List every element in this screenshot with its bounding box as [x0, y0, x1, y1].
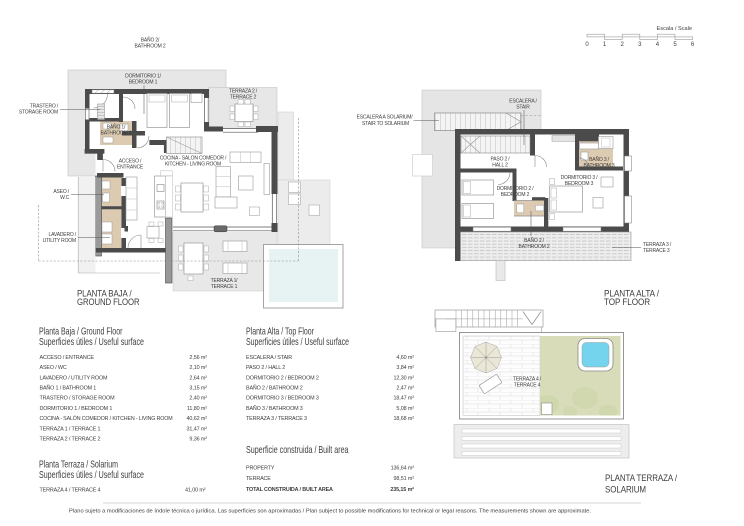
svg-text:3,84 m²: 3,84 m²: [396, 365, 414, 371]
svg-text:BAÑO 2 /: BAÑO 2 /: [524, 237, 544, 244]
svg-text:136,64 m²: 136,64 m²: [391, 466, 415, 472]
svg-text:TERRAZA 1 / TERRACE 1: TERRAZA 1 / TERRACE 1: [40, 426, 101, 432]
svg-text:Superficie construida / Built: Superficie construida / Built area: [246, 445, 349, 456]
svg-text:11,80 m²: 11,80 m²: [187, 406, 207, 412]
svg-text:4: 4: [656, 42, 660, 48]
svg-text:W.C: W.C: [60, 195, 69, 201]
svg-text:2,47 m²: 2,47 m²: [396, 386, 414, 392]
svg-text:BAÑO 2 / BATHROOM 2: BAÑO 2 / BATHROOM 2: [246, 385, 303, 392]
svg-text:BATHROOM 1: BATHROOM 1: [101, 131, 132, 137]
svg-text:Plano sujeto a modificaciones: Plano sujeto a modificaciones de índole …: [69, 509, 591, 515]
svg-text:3,15 m²: 3,15 m²: [189, 386, 207, 392]
svg-text:UTILITY ROOM: UTILITY ROOM: [43, 238, 76, 244]
svg-text:6: 6: [691, 42, 695, 48]
svg-text:GROUND FLOOR: GROUND FLOOR: [77, 297, 140, 307]
svg-text:Superficies útiles / Useful su: Superficies útiles / Useful surface: [39, 470, 144, 481]
svg-text:TOP FLOOR: TOP FLOOR: [604, 297, 650, 307]
svg-text:Planta Terraza / Solarium: Planta Terraza / Solarium: [39, 460, 118, 471]
svg-text:Planta Baja / Ground Floor: Planta Baja / Ground Floor: [39, 327, 123, 338]
svg-text:41,00 m²: 41,00 m²: [185, 488, 206, 494]
svg-text:12,30 m²: 12,30 m²: [394, 375, 415, 381]
svg-text:Planta Alta / Top Floor: Planta Alta / Top Floor: [246, 327, 314, 338]
svg-text:DORMITORIO 1 / BEDROOM 1: DORMITORIO 1 / BEDROOM 1: [40, 406, 113, 412]
svg-text:BEDROOM 1: BEDROOM 1: [129, 80, 158, 86]
svg-text:ACCESO / ENTRANCE: ACCESO / ENTRANCE: [40, 355, 95, 361]
svg-text:BAÑO 2/: BAÑO 2/: [141, 37, 160, 44]
svg-text:DORMITORIO 3 / BEDROOM 3: DORMITORIO 3 / BEDROOM 3: [246, 396, 319, 402]
svg-text:ESCALERA / STAIR: ESCALERA / STAIR: [246, 355, 292, 361]
svg-text:TOTAL CONSTRUIDA / BUILT AREA: TOTAL CONSTRUIDA / BUILT AREA: [246, 487, 333, 493]
svg-text:1: 1: [603, 42, 607, 48]
svg-text:2,40 m²: 2,40 m²: [189, 396, 207, 402]
svg-text:BEDROOM 3: BEDROOM 3: [565, 181, 594, 187]
svg-text:TERRAZA 3 / TERRACE 3: TERRAZA 3 / TERRACE 3: [246, 416, 307, 422]
svg-text:2,56 m²: 2,56 m²: [189, 355, 207, 361]
svg-text:DORMITORIO 2 / BEDROOM 2: DORMITORIO 2 / BEDROOM 2: [246, 375, 319, 381]
svg-text:TERRAZA 2 / TERRACE 2: TERRAZA 2 / TERRACE 2: [40, 437, 101, 443]
svg-text:5,08 m²: 5,08 m²: [396, 406, 414, 412]
svg-text:3: 3: [638, 42, 642, 48]
svg-text:BATHROOM 2: BATHROOM 2: [519, 244, 550, 250]
svg-text:PROPERTY: PROPERTY: [246, 466, 275, 472]
svg-text:KITCHEN - LIVING ROOM: KITCHEN - LIVING ROOM: [165, 162, 221, 168]
svg-text:2,10 m²: 2,10 m²: [189, 365, 207, 371]
svg-text:HALL 2: HALL 2: [492, 163, 508, 169]
svg-text:5: 5: [673, 42, 677, 48]
svg-text:2: 2: [621, 42, 625, 48]
svg-text:LAVADERO / UTILITY ROOM: LAVADERO / UTILITY ROOM: [40, 375, 108, 381]
svg-text:PLANTA TERRAZA /: PLANTA TERRAZA /: [605, 473, 677, 483]
svg-text:BATHROOM 2: BATHROOM 2: [135, 44, 166, 50]
svg-text:STORAGE ROOM: STORAGE ROOM: [19, 110, 58, 116]
svg-text:TRASTERO / STORAGE ROOM: TRASTERO / STORAGE ROOM: [40, 396, 116, 402]
svg-text:ASEO / WC: ASEO / WC: [40, 365, 67, 371]
svg-text:TERRACE 2: TERRACE 2: [230, 95, 257, 101]
svg-text:PASO 2 / HALL 2: PASO 2 / HALL 2: [246, 365, 285, 371]
svg-text:2,64 m²: 2,64 m²: [189, 375, 207, 381]
svg-text:18,68 m²: 18,68 m²: [394, 416, 415, 422]
svg-text:Superficies útiles / Useful su: Superficies útiles / Useful surface: [246, 337, 349, 348]
svg-text:BAÑO 3 /: BAÑO 3 /: [589, 156, 609, 163]
svg-text:BAÑO 1/: BAÑO 1/: [107, 124, 126, 131]
svg-text:ESCALERA A SOLARIUM/: ESCALERA A SOLARIUM/: [357, 115, 414, 121]
svg-text:TERRACE 3: TERRACE 3: [643, 248, 670, 254]
svg-text:31,47 m²: 31,47 m²: [187, 426, 208, 432]
svg-text:4,60 m²: 4,60 m²: [396, 355, 414, 361]
svg-text:TERRAZA 4 / TERRACE 4: TERRAZA 4 / TERRACE 4: [40, 488, 101, 494]
svg-text:SOLARIUM: SOLARIUM: [605, 485, 646, 495]
svg-text:BAÑO 3 / BATHROOM 3: BAÑO 3 / BATHROOM 3: [246, 405, 303, 412]
svg-text:ENTRANCE: ENTRANCE: [117, 165, 144, 171]
svg-text:COCINA - SALÓN COMEDOR / KITCH: COCINA - SALÓN COMEDOR / KITCHEN - LIVIN…: [40, 415, 174, 422]
svg-text:235,15 m²: 235,15 m²: [390, 487, 414, 493]
svg-text:STAIR: STAIR: [516, 105, 530, 111]
svg-text:BAÑO 1 / BATHROOM 1: BAÑO 1 / BATHROOM 1: [40, 385, 97, 392]
svg-text:18,47 m²: 18,47 m²: [394, 396, 415, 402]
svg-text:0: 0: [585, 42, 589, 48]
svg-text:BEDROOM 2: BEDROOM 2: [501, 192, 530, 198]
svg-text:Superficies útiles / Useful su: Superficies útiles / Useful surface: [39, 337, 144, 348]
svg-text:40,62 m²: 40,62 m²: [187, 416, 208, 422]
svg-text:TERRACE 1: TERRACE 1: [211, 284, 238, 290]
svg-text:BATHROOM 3: BATHROOM 3: [584, 163, 615, 169]
svg-text:TERRACE 4: TERRACE 4: [514, 383, 541, 389]
svg-text:STAIR TO SOLARIUM: STAIR TO SOLARIUM: [362, 121, 409, 127]
svg-text:9,36 m²: 9,36 m²: [189, 437, 207, 443]
svg-text:98,51 m²: 98,51 m²: [394, 476, 415, 482]
svg-text:Escala / Scale: Escala / Scale: [657, 26, 692, 32]
svg-text:TERRACE: TERRACE: [246, 476, 271, 482]
